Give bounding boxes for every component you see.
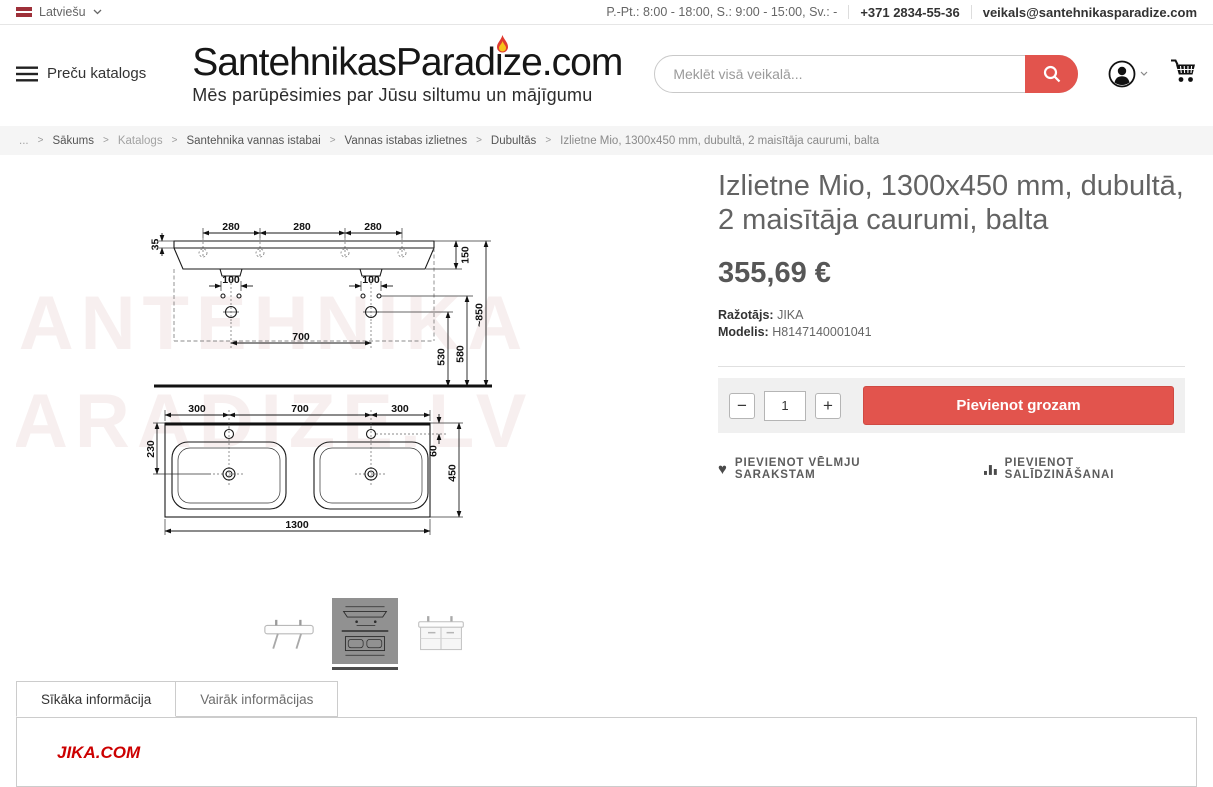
divider [848, 5, 849, 19]
product-image[interactable]: SANTEHNIKA PARADIZE.LV 280 [16, 167, 714, 590]
tab-content: JIKA.COM [16, 717, 1197, 787]
logo-tagline: Mēs parūpēsimies par Jūsu siltumu un māj… [192, 86, 622, 104]
technical-drawing: 280 280 280 35 100 [139, 223, 591, 555]
svg-text:230: 230 [145, 440, 157, 458]
qty-increase-button[interactable]: + [815, 393, 841, 419]
svg-text:580: 580 [455, 345, 467, 363]
add-to-cart-button[interactable]: Pievienot grozam [863, 386, 1174, 425]
site-header: Preču katalogs SantehnikasParadize.com M… [0, 25, 1213, 126]
compare-label: PIEVIENOT SALĪDZINĀŠANAI [1005, 457, 1185, 481]
breadcrumb-current: Izlietne Mio, 1300x450 mm, dubultā, 2 ma… [560, 135, 879, 147]
product-price: 355,69 € [718, 257, 1185, 290]
chevron-down-icon [93, 9, 102, 15]
chevron-down-icon [1140, 71, 1148, 77]
product-media: SANTEHNIKA PARADIZE.LV 280 [16, 167, 714, 664]
thumbnail-drawing-selected[interactable] [332, 598, 398, 664]
qty-decrease-button[interactable]: − [729, 393, 755, 419]
product-actions: ♥ PIEVIENOT VĒLMJU SARAKSTAM PIEVIENOT S… [718, 457, 1185, 481]
wishlist-label: PIEVIENOT VĒLMJU SARAKSTAM [735, 457, 942, 481]
manufacturer-value: JIKA [777, 308, 803, 322]
heart-icon: ♥ [718, 461, 727, 478]
top-bar: Latviešu P.-Pt.: 8:00 - 18:00, S.: 9:00 … [0, 0, 1213, 25]
divider [718, 366, 1185, 367]
tab-bar: Sīkāka informācija Vairāk informācijas [16, 681, 1197, 717]
flame-icon [495, 35, 510, 54]
search-icon [1042, 64, 1062, 84]
breadcrumb-separator: > [172, 135, 178, 146]
breadcrumb-separator: > [330, 135, 336, 146]
svg-text:300: 300 [188, 403, 206, 415]
breadcrumb-subcategory[interactable]: Vannas istabas izlietnes [345, 135, 468, 147]
buy-box: − + Pievienot grozam [718, 378, 1185, 433]
phone-link[interactable]: +371 2834-55-36 [860, 5, 959, 20]
manufacturer-label: Ražotājs: [718, 308, 774, 322]
breadcrumb-catalog[interactable]: Katalogs [118, 135, 163, 147]
brand-link[interactable]: JIKA.COM [57, 743, 140, 762]
compare-bars-icon [984, 463, 997, 476]
tab-more-info[interactable]: Vairāk informācijas [176, 681, 338, 717]
breadcrumb-separator: > [545, 135, 551, 146]
language-selector[interactable]: Latviešu [16, 5, 102, 19]
breadcrumb-home[interactable]: Sākums [52, 135, 94, 147]
thumbnail-cabinet[interactable] [408, 598, 474, 664]
svg-text:1300: 1300 [285, 519, 309, 531]
breadcrumb: ... > Sākums > Katalogs > Santehnika van… [0, 126, 1213, 155]
svg-text:60: 60 [428, 445, 440, 457]
svg-text:530: 530 [436, 348, 448, 366]
catalog-menu-button[interactable]: Preču katalogs [16, 65, 146, 82]
svg-text:450: 450 [447, 464, 459, 482]
breadcrumb-separator: > [103, 135, 109, 146]
account-icon [1108, 60, 1136, 88]
svg-text:35: 35 [150, 239, 162, 251]
header-icons [1108, 58, 1197, 89]
svg-text:700: 700 [291, 403, 309, 415]
model-value: H8147140001041 [772, 325, 871, 339]
hamburger-icon [16, 66, 38, 82]
breadcrumb-ellipsis[interactable]: ... [19, 135, 29, 147]
logo-text: SantehnikasParadize.com [192, 43, 622, 82]
svg-text:300: 300 [391, 403, 409, 415]
svg-text:280: 280 [222, 223, 240, 233]
search-input[interactable] [654, 55, 1078, 93]
model-label: Modelis: [718, 325, 769, 339]
catalog-button-label: Preču katalogs [47, 65, 146, 82]
cart-icon [1170, 58, 1197, 84]
thumbnail-strip [16, 598, 714, 664]
add-to-compare-link[interactable]: PIEVIENOT SALĪDZINĀŠANAI [984, 457, 1185, 481]
divider [971, 5, 972, 19]
product-page: SANTEHNIKA PARADIZE.LV 280 [0, 155, 1213, 664]
qty-input[interactable] [764, 391, 806, 421]
technical-drawing-thumb [338, 603, 392, 659]
sink-photo-thumb [259, 605, 319, 657]
language-label: Latviešu [39, 5, 86, 19]
search-bar [654, 55, 1078, 93]
cabinet-photo-thumb [411, 605, 471, 657]
email-link[interactable]: veikals@santehnikasparadize.com [983, 5, 1197, 20]
breadcrumb-separator: > [476, 135, 482, 146]
product-details-tabs: Sīkāka informācija Vairāk informācijas J… [0, 681, 1213, 787]
product-info: Izlietne Mio, 1300x450 mm, dubultā, 2 ma… [714, 167, 1197, 664]
breadcrumb-separator: > [38, 135, 44, 146]
product-title: Izlietne Mio, 1300x450 mm, dubultā, 2 ma… [718, 169, 1185, 237]
search-button[interactable] [1025, 55, 1078, 93]
manufacturer-row: Ražotājs: JIKA [718, 308, 1185, 322]
breadcrumb-subcategory2[interactable]: Dubultās [491, 135, 536, 147]
svg-text:150: 150 [460, 246, 472, 264]
thumbnail-photo[interactable] [256, 598, 322, 664]
model-row: Modelis: H8147140001041 [718, 325, 1185, 339]
svg-text:280: 280 [293, 223, 311, 233]
latvia-flag-icon [16, 7, 32, 17]
svg-text:~850: ~850 [474, 303, 486, 327]
tab-details[interactable]: Sīkāka informācija [16, 681, 176, 717]
account-button[interactable] [1108, 60, 1148, 88]
working-hours: P.-Pt.: 8:00 - 18:00, S.: 9:00 - 15:00, … [606, 5, 837, 19]
breadcrumb-category[interactable]: Santehnika vannas istabai [186, 135, 320, 147]
site-logo[interactable]: SantehnikasParadize.com Mēs parūpēsimies… [192, 43, 622, 104]
svg-text:280: 280 [364, 223, 382, 233]
add-to-wishlist-link[interactable]: ♥ PIEVIENOT VĒLMJU SARAKSTAM [718, 457, 942, 481]
topbar-contacts: P.-Pt.: 8:00 - 18:00, S.: 9:00 - 15:00, … [606, 5, 1197, 20]
cart-button[interactable] [1170, 58, 1197, 89]
